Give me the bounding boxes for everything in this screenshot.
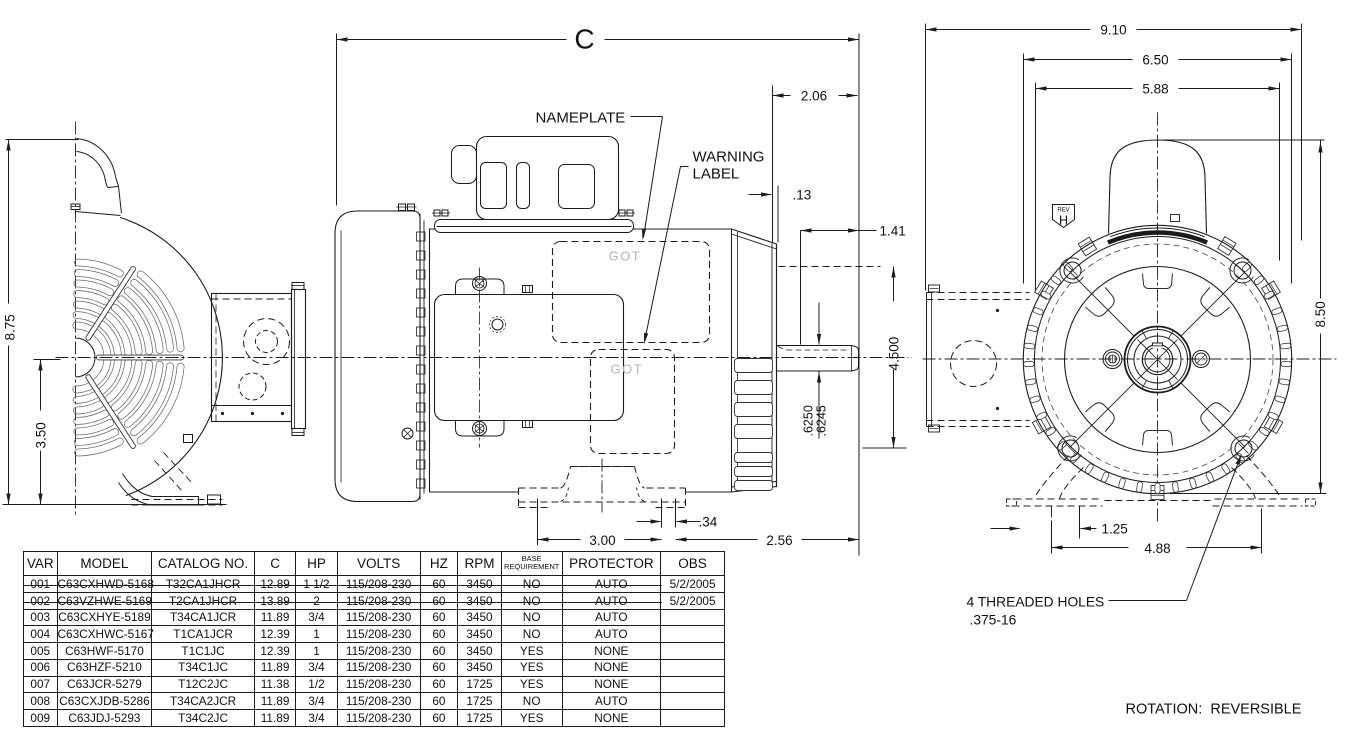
svg-text:9.10: 9.10: [1100, 23, 1126, 38]
svg-text:.6245: .6245: [815, 405, 829, 436]
svg-text:8.50: 8.50: [1313, 301, 1328, 327]
svg-text:4 THREADED HOLES: 4 THREADED HOLES: [967, 595, 1105, 610]
svg-text:.375-16: .375-16: [970, 613, 1017, 628]
svg-text:1.25: 1.25: [1102, 522, 1128, 537]
svg-text:2.06: 2.06: [801, 89, 827, 104]
svg-text:2.56: 2.56: [766, 533, 792, 548]
svg-text:4.88: 4.88: [1144, 541, 1170, 556]
svg-text:8.75: 8.75: [3, 314, 18, 340]
svg-text:3.00: 3.00: [589, 533, 615, 548]
svg-text:LABEL: LABEL: [693, 166, 740, 183]
svg-text:C: C: [574, 24, 594, 55]
svg-text:NAMEPLATE: NAMEPLATE: [536, 110, 626, 127]
svg-text:.13: .13: [793, 188, 812, 203]
svg-text:.6250: .6250: [802, 405, 816, 436]
svg-text:3.50: 3.50: [34, 422, 49, 448]
svg-text:H: H: [1059, 214, 1068, 228]
svg-text:1.41: 1.41: [880, 224, 906, 239]
svg-text:ROTATION: REVERSIBLE: ROTATION: REVERSIBLE: [1126, 702, 1302, 718]
svg-text:4.500: 4.500: [887, 337, 902, 371]
svg-text:6.50: 6.50: [1142, 53, 1168, 68]
svg-text:GOT: GOT: [609, 249, 642, 264]
svg-text:GOT: GOT: [611, 362, 644, 377]
svg-text:5.88: 5.88: [1142, 82, 1168, 97]
svg-text:.34: .34: [699, 515, 718, 530]
svg-text:WARNING: WARNING: [693, 149, 765, 166]
